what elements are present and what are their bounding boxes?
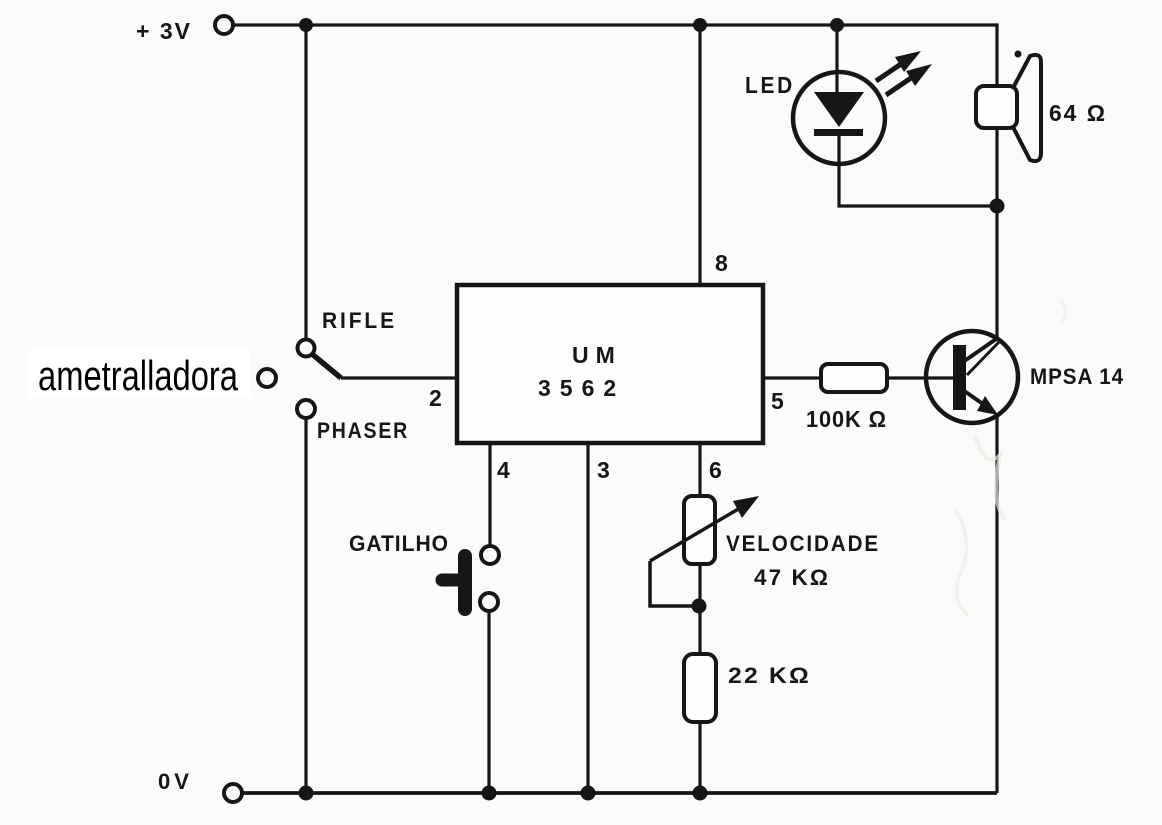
svg-text:5: 5	[771, 388, 784, 414]
svg-text:6: 6	[709, 457, 722, 483]
svg-text:LED: LED	[745, 72, 795, 98]
svg-text:47 KΩ: 47 KΩ	[754, 565, 830, 590]
svg-text:ametralladora: ametralladora	[38, 352, 238, 399]
svg-text:MPSA 14: MPSA 14	[1030, 364, 1124, 389]
svg-text:4: 4	[497, 457, 510, 483]
svg-text:RIFLE: RIFLE	[322, 308, 397, 333]
svg-text:GATILHO: GATILHO	[349, 531, 449, 556]
svg-text:UM: UM	[572, 342, 622, 368]
svg-text:PHASER: PHASER	[317, 418, 409, 443]
svg-text:3: 3	[597, 457, 610, 483]
svg-text:VELOCIDADE: VELOCIDADE	[726, 531, 880, 556]
svg-text:+ 3V: + 3V	[136, 18, 192, 44]
svg-text:22 KΩ: 22 KΩ	[728, 663, 811, 688]
svg-text:3562: 3562	[538, 375, 625, 401]
svg-text:8: 8	[715, 250, 728, 276]
svg-text:0V: 0V	[158, 769, 193, 794]
svg-text:64 Ω: 64 Ω	[1049, 100, 1107, 126]
svg-text:2: 2	[429, 385, 442, 411]
svg-text:100K Ω: 100K Ω	[806, 406, 887, 432]
